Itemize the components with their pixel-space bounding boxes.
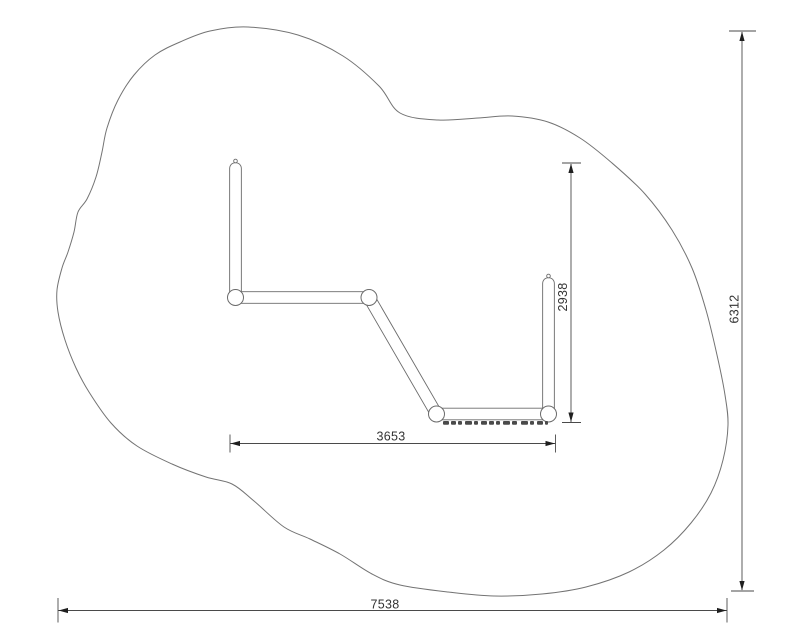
dimension-label: 2938: [556, 282, 570, 311]
tube-diagonal-rail-fill: [369, 298, 437, 415]
tread-mark: [530, 421, 534, 425]
tread-mark: [489, 421, 494, 425]
equipment-plan: [228, 159, 557, 425]
dimension-arrow: [717, 608, 727, 613]
tread-mark: [537, 421, 543, 425]
tread-mark: [503, 421, 510, 425]
dimension-arrow: [739, 32, 744, 42]
dimension-overall-width: 7538: [58, 598, 727, 623]
dimension-arrow: [59, 608, 69, 613]
dimension-label: 7538: [370, 598, 399, 612]
cad-plan-view: 3653 2938 6312 7538: [0, 0, 800, 640]
post-tip: [547, 274, 551, 278]
tread-mark: [451, 421, 456, 425]
dimension-arrow: [568, 413, 573, 423]
dimension-arrow: [231, 441, 241, 446]
tread-mark: [458, 421, 462, 425]
dimension-arrow: [568, 164, 573, 174]
dimension-label: 3653: [376, 430, 405, 444]
dimension-arrow: [546, 441, 556, 446]
dimension-equipment-width: 3653: [230, 430, 556, 453]
joint-cap: [228, 290, 244, 306]
safety-zone-outline: [57, 27, 728, 596]
post-tip: [234, 159, 238, 163]
tread-mark: [474, 421, 478, 425]
joint-cap: [541, 406, 557, 422]
dimension-label: 6312: [728, 294, 742, 323]
tread-mark: [481, 421, 487, 425]
technical-drawing: 3653 2938 6312 7538: [0, 0, 800, 640]
tread-mark: [496, 421, 500, 425]
dimension-equipment-height: 2938: [556, 163, 581, 423]
joint-cap: [429, 406, 445, 422]
tread-marks: [443, 421, 548, 425]
tread-mark: [521, 421, 528, 425]
tread-mark: [465, 421, 472, 425]
tread-mark: [512, 421, 517, 425]
tread-mark: [545, 421, 548, 425]
dimension-overall-height: 6312: [728, 31, 757, 591]
joint-cap: [361, 290, 377, 306]
tube-outlines: [236, 169, 549, 415]
dimension-arrow: [739, 581, 744, 591]
tread-mark: [443, 421, 449, 425]
